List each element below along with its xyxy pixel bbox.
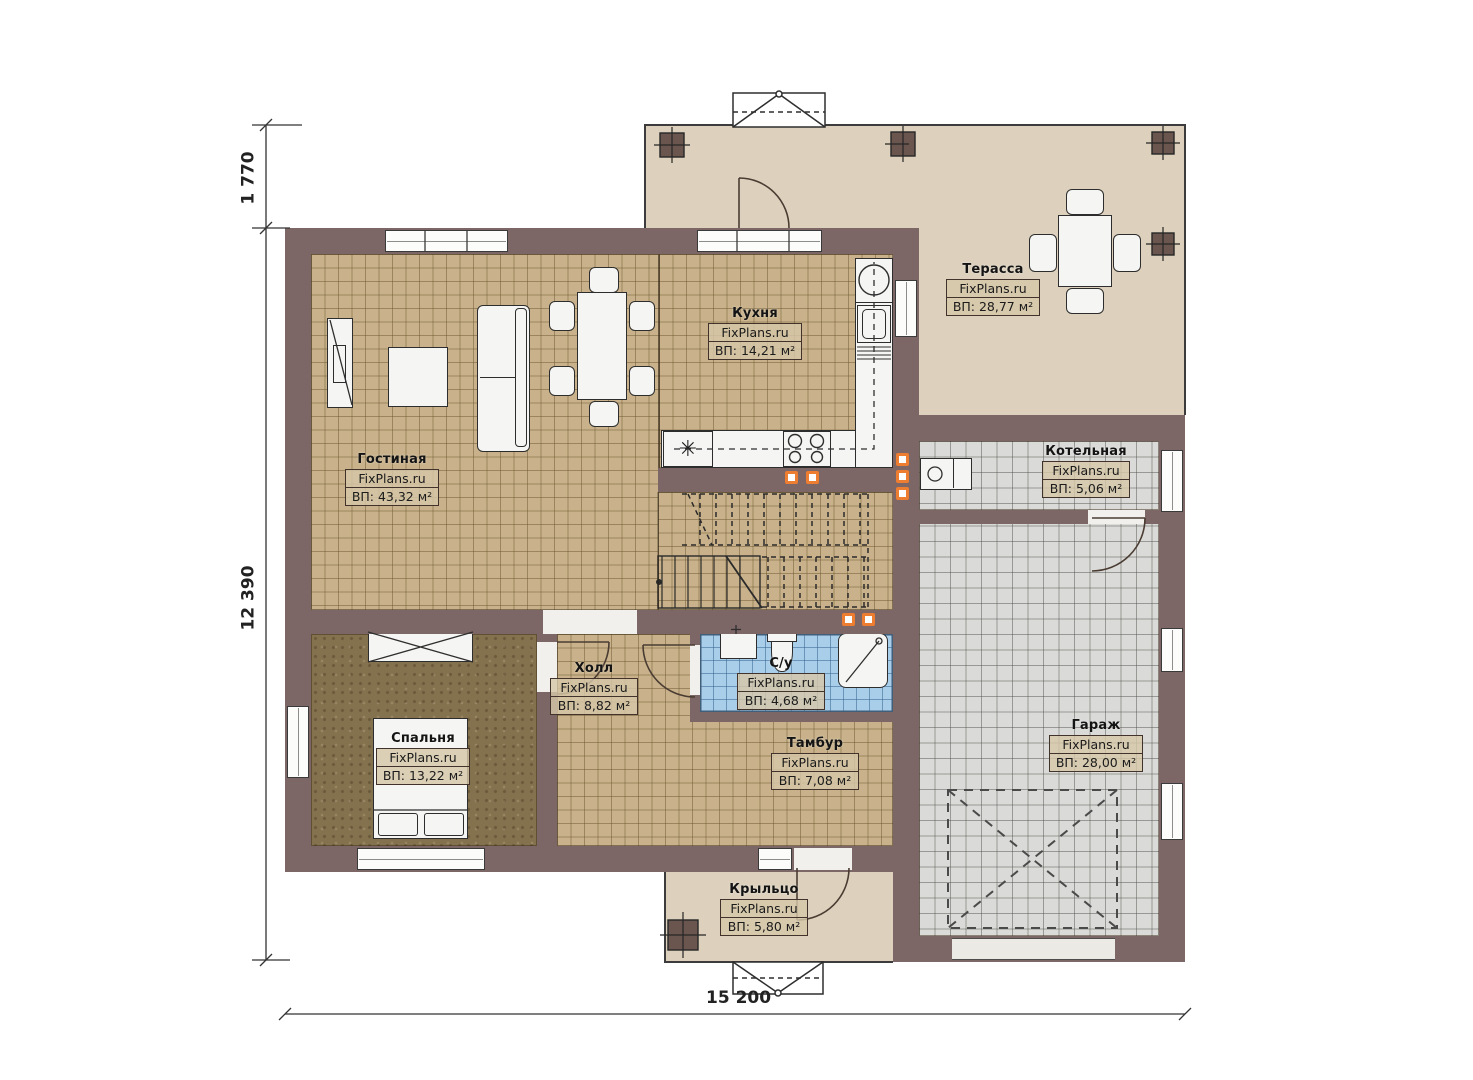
pillow — [424, 813, 464, 836]
dimension-house-width: 15 200 — [706, 988, 771, 1008]
room-label-garage: Гараж FixPlans.ru ВП: 28,00 м² — [1036, 718, 1156, 772]
tv-screen — [333, 345, 346, 383]
room-name: Спальня — [363, 731, 483, 746]
watermark: FixPlans.ru — [346, 470, 438, 487]
watermark: FixPlans.ru — [772, 754, 858, 771]
room-label-terrace: Терасса FixPlans.ru ВП: 28,77 м² — [933, 262, 1053, 316]
room-area: ВП: 28,77 м² — [947, 297, 1039, 315]
coffee-table — [388, 347, 448, 407]
kitchen-sink — [857, 305, 891, 343]
terrace-table — [1058, 215, 1112, 287]
watermark: FixPlans.ru — [709, 324, 801, 341]
tv-unit — [327, 318, 353, 408]
room-name: Терасса — [933, 262, 1053, 277]
terrace-chair — [1066, 288, 1104, 314]
room-label-tambour: Тамбур FixPlans.ru ВП: 7,08 м² — [755, 736, 875, 790]
boiler-unit — [920, 458, 972, 490]
watermark: FixPlans.ru — [551, 679, 637, 696]
door-opening-bathroom — [690, 645, 700, 695]
watermark: FixPlans.ru — [721, 900, 807, 917]
wall-right-house — [893, 228, 919, 962]
room-label-hall: Холл FixPlans.ru ВП: 8,82 м² — [534, 661, 654, 715]
dining-table — [577, 292, 627, 400]
outlet-icon — [842, 613, 855, 626]
outlet-icon — [896, 487, 909, 500]
room-label-boiler: Котельная FixPlans.ru ВП: 5,06 м² — [1026, 444, 1146, 498]
outlet-icon — [896, 470, 909, 483]
fridge — [855, 258, 893, 303]
sofa-seat-split — [480, 377, 516, 378]
window-living-top — [385, 230, 508, 252]
window-tambour-bottom — [758, 848, 792, 870]
dining-chair — [589, 401, 619, 427]
door-opening-boiler — [1088, 510, 1145, 524]
sofa — [477, 305, 530, 452]
room-area: ВП: 14,21 м² — [709, 341, 801, 359]
dishwasher-icon: ✳ — [663, 431, 713, 467]
dining-chair — [589, 267, 619, 293]
wall-bath-left-a — [690, 634, 700, 645]
room-area: ВП: 8,82 м² — [551, 696, 637, 714]
terrace-chair — [1113, 234, 1141, 272]
window-kitchen-right — [895, 280, 917, 337]
room-name: Тамбур — [755, 736, 875, 751]
room-label-kitchen: Кухня FixPlans.ru ВП: 14,21 м² — [695, 306, 815, 360]
wall-bedroom-hall-b — [537, 692, 557, 846]
window-garage-right-lower — [1161, 783, 1183, 840]
stairwell-floor — [658, 492, 893, 610]
watermark: FixPlans.ru — [947, 280, 1039, 297]
wall-bath-left-b — [690, 695, 700, 712]
room-label-living: Гостиная FixPlans.ru ВП: 43,32 м² — [332, 452, 452, 506]
terrace-steps — [733, 91, 825, 127]
room-label-wc: С/у FixPlans.ru ВП: 4,68 м² — [721, 656, 841, 710]
dining-chair — [629, 366, 655, 396]
wall-bedroom-hall-a — [537, 634, 557, 642]
window-bedroom-bottom — [357, 848, 485, 870]
room-area: ВП: 4,68 м² — [738, 691, 824, 709]
dining-chair — [549, 301, 575, 331]
room-name: Холл — [534, 661, 654, 676]
wall-kitchen-stairs — [658, 468, 893, 492]
window-boiler-right — [1161, 450, 1183, 512]
room-area: ВП: 5,06 м² — [1043, 479, 1129, 497]
room-name: Крыльцо — [704, 882, 824, 897]
room-label-bedroom: Спальня FixPlans.ru ВП: 13,22 м² — [363, 731, 483, 785]
outlet-icon — [806, 471, 819, 484]
room-name: Котельная — [1026, 444, 1146, 459]
watermark: FixPlans.ru — [1043, 462, 1129, 479]
outlet-icon — [896, 453, 909, 466]
passage-living-hall — [543, 610, 637, 634]
room-name: Кухня — [695, 306, 815, 321]
outlet-icon — [862, 613, 875, 626]
door-terrace-kitchen — [697, 230, 822, 252]
shower-tray — [838, 633, 888, 688]
door-opening-tambour-porch — [794, 848, 852, 870]
sofa-back — [515, 308, 527, 447]
room-name: С/у — [721, 656, 841, 671]
room-area: ВП: 7,08 м² — [772, 771, 858, 789]
watermark: FixPlans.ru — [377, 749, 469, 766]
watermark: FixPlans.ru — [1050, 736, 1142, 753]
appliance-asterisk-glyph: ✳ — [679, 437, 697, 462]
garage-door-opening — [952, 938, 1115, 960]
dining-chair — [629, 301, 655, 331]
window-garage-right-upper — [1161, 628, 1183, 672]
dining-chair — [549, 366, 575, 396]
window-bedroom-left — [287, 706, 309, 778]
wall-bath-bottom — [690, 712, 893, 722]
dimension-terrace-depth: 1 770 — [239, 151, 259, 204]
wardrobe — [368, 632, 473, 662]
terrace-chair — [1066, 189, 1104, 215]
room-name: Гостиная — [332, 452, 452, 467]
pillow — [378, 813, 418, 836]
boiler-divider — [953, 459, 954, 488]
floor-plan: ✳ — [0, 0, 1473, 1080]
watermark: FixPlans.ru — [738, 674, 824, 691]
room-area: ВП: 5,80 м² — [721, 917, 807, 935]
wall-boiler-garage-b — [1145, 510, 1159, 524]
room-name: Гараж — [1036, 718, 1156, 733]
terrace-floor — [645, 125, 1185, 229]
room-label-porch: Крыльцо FixPlans.ru ВП: 5,80 м² — [704, 882, 824, 936]
stove — [783, 431, 831, 467]
room-area: ВП: 43,32 м² — [346, 487, 438, 505]
room-area: ВП: 13,22 м² — [377, 766, 469, 784]
dimension-house-depth: 12 390 — [239, 565, 259, 630]
wall-mid-a — [311, 610, 543, 634]
wall-wing-top — [893, 415, 1185, 441]
sink-basin — [862, 309, 886, 339]
room-area: ВП: 28,00 м² — [1050, 753, 1142, 771]
wall-boiler-garage-a — [919, 510, 1088, 524]
outlet-icon — [785, 471, 798, 484]
